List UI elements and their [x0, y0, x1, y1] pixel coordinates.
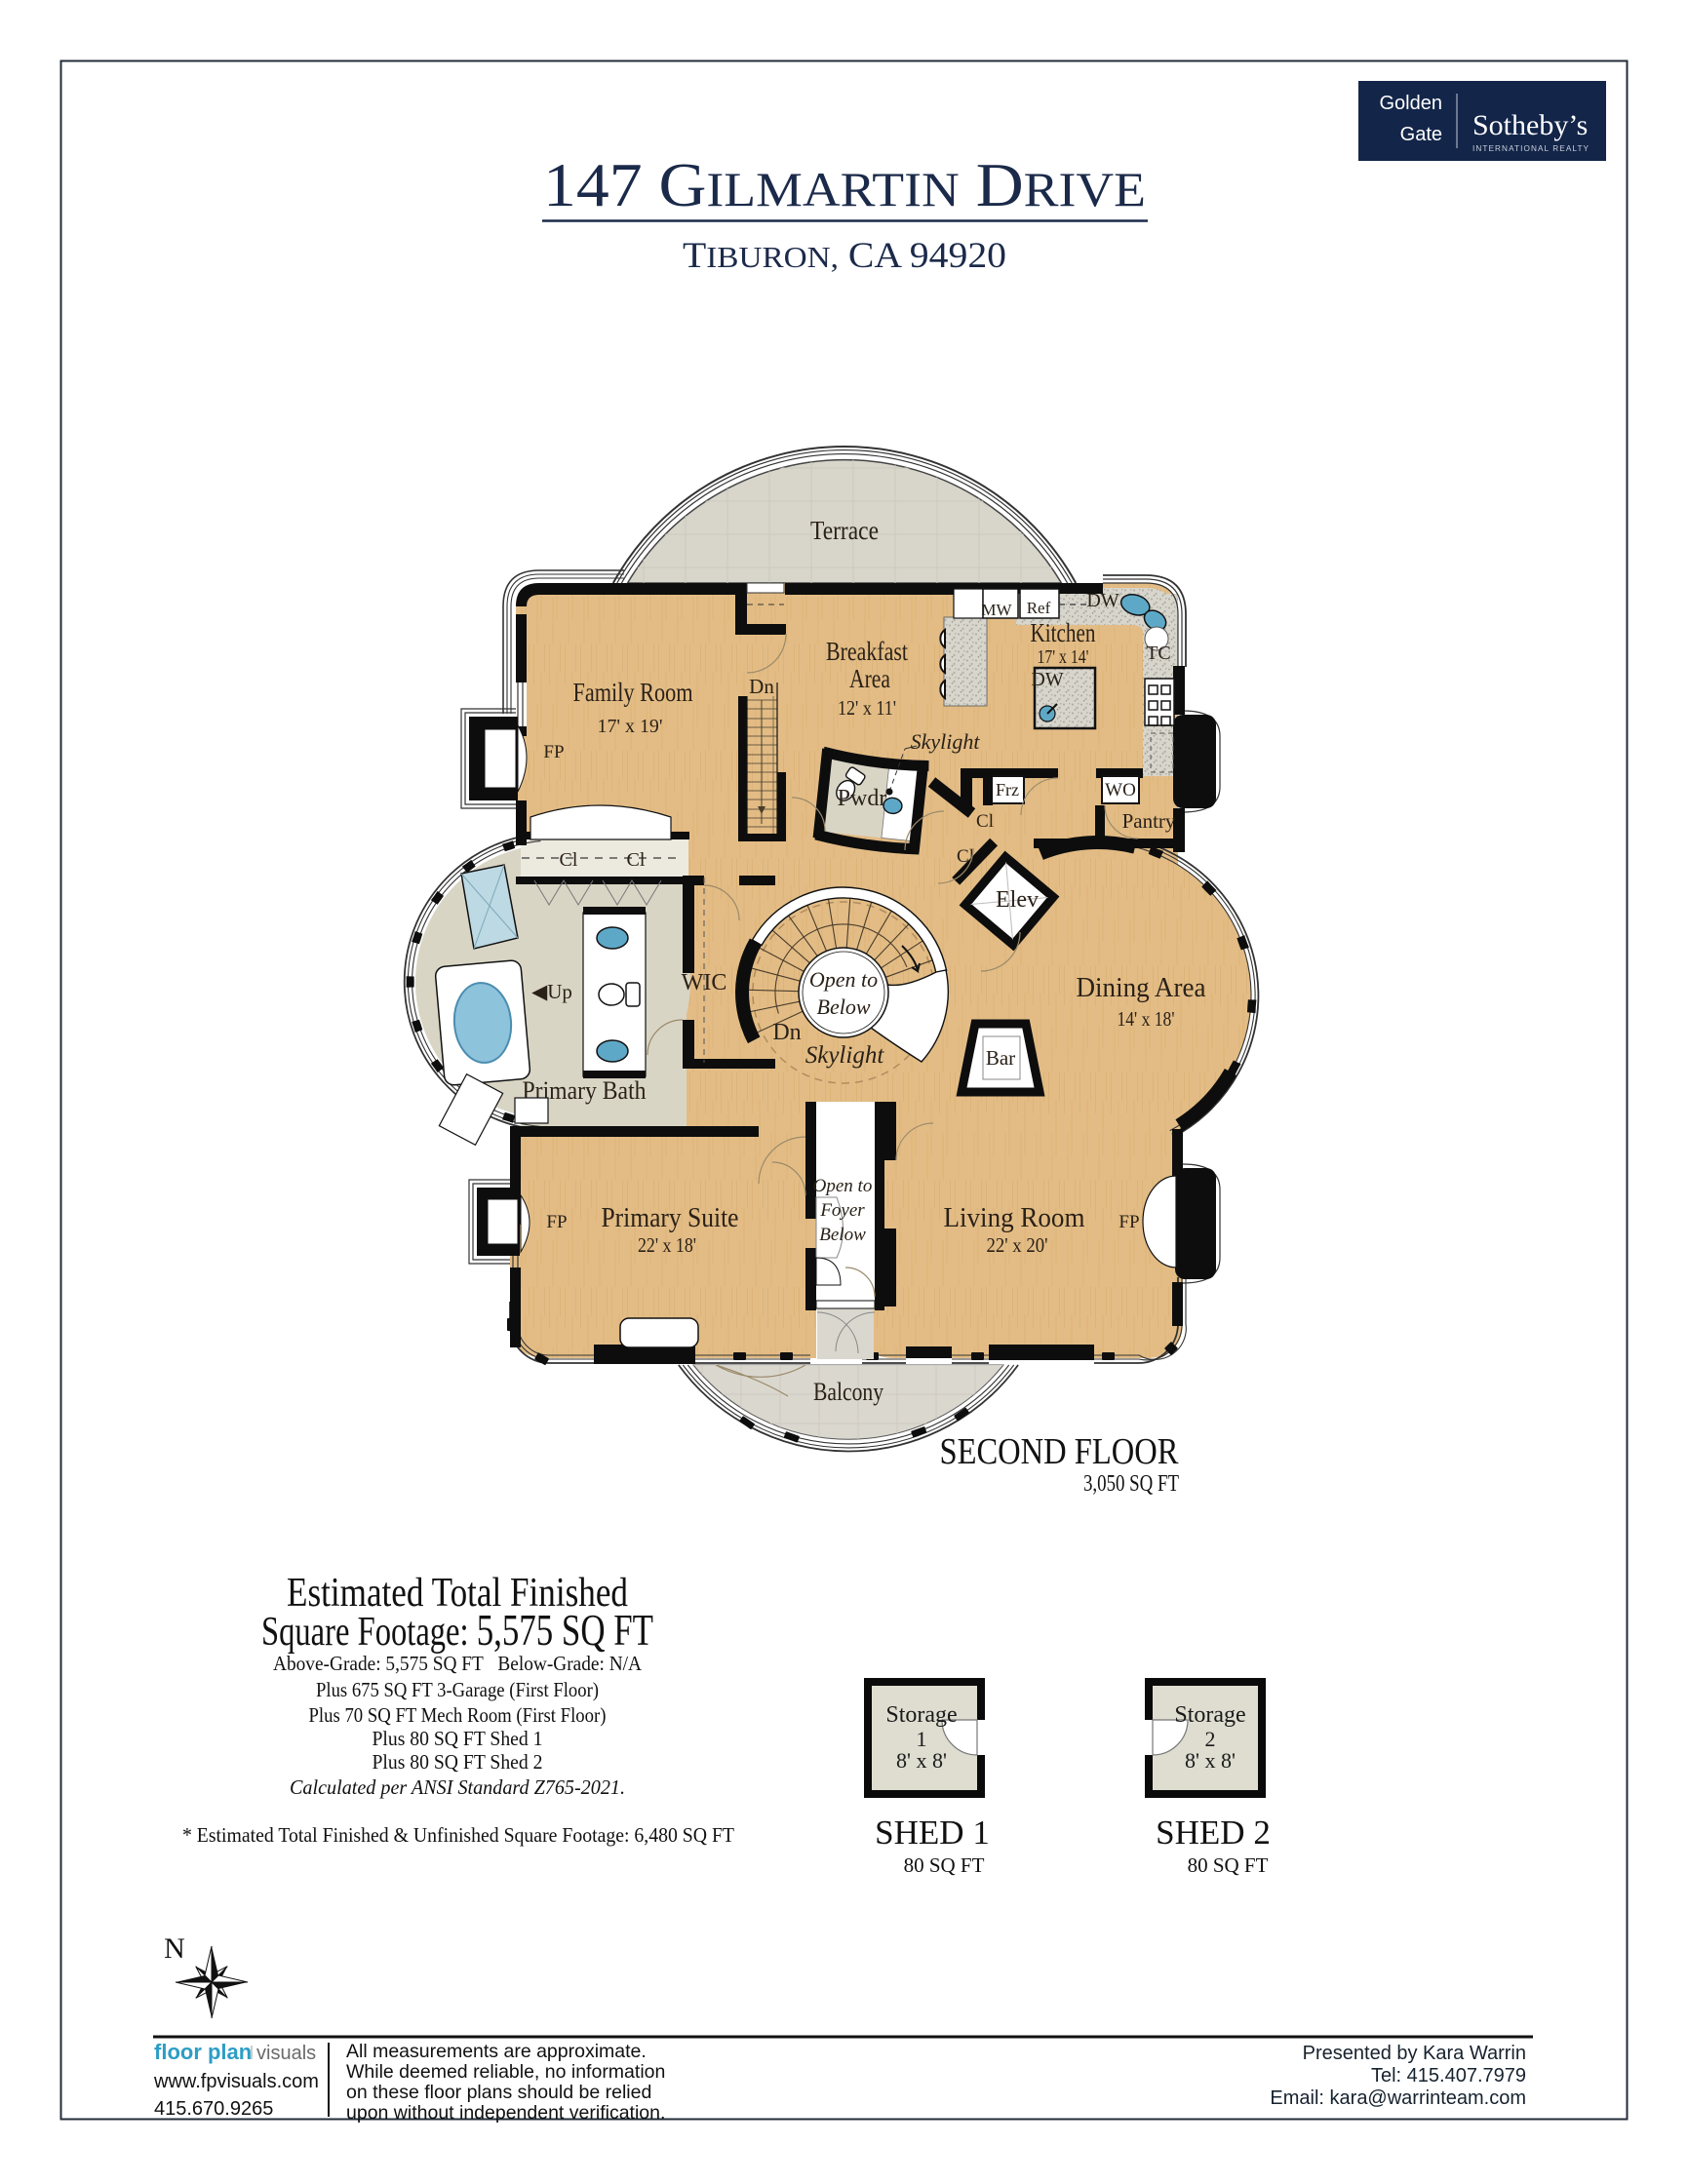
svg-text:Skylight: Skylight: [805, 1042, 885, 1069]
svg-text:14' x 18': 14' x 18': [1118, 1007, 1175, 1031]
svg-text:DW: DW: [1031, 669, 1063, 690]
svg-text:upon without independent verif: upon without independent verification.: [346, 2102, 665, 2124]
svg-text:415.670.9265: 415.670.9265: [154, 2098, 273, 2120]
svg-text:Plus 80 SQ FT Shed 2: Plus 80 SQ FT Shed 2: [373, 1750, 543, 1774]
svg-text:Pantry: Pantry: [1122, 809, 1176, 833]
svg-text:Storage: Storage: [885, 1702, 957, 1728]
svg-text:17' x 19': 17' x 19': [598, 716, 663, 737]
svg-text:WO: WO: [1105, 780, 1136, 800]
svg-text:147 GILMARTIN DRIVE: 147 GILMARTIN DRIVE: [543, 151, 1146, 219]
svg-text:Storage: Storage: [1174, 1702, 1245, 1728]
svg-text:Above-Grade: 5,575 SQ FT Bel: Above-Grade: 5,575 SQ FT Below-Grade: N/…: [273, 1652, 643, 1675]
svg-text:Frz: Frz: [996, 780, 1019, 799]
svg-text:Primary Suite: Primary Suite: [602, 1203, 739, 1233]
svg-text:FP: FP: [546, 1212, 567, 1232]
svg-text:Below: Below: [819, 1225, 866, 1245]
svg-text:Open to: Open to: [813, 1176, 873, 1196]
svg-text:Below: Below: [817, 994, 871, 1019]
svg-text:SECOND FLOOR: SECOND FLOOR: [940, 1431, 1180, 1472]
svg-text:22' x 20': 22' x 20': [987, 1233, 1048, 1257]
svg-text:Family Room: Family Room: [573, 678, 693, 707]
svg-text:Area: Area: [849, 664, 890, 693]
svg-text:8' x 8': 8' x 8': [1185, 1748, 1236, 1773]
svg-text:Plus 80 SQ FT Shed 1: Plus 80 SQ FT Shed 1: [373, 1727, 543, 1750]
svg-text:N: N: [164, 1932, 185, 1965]
svg-text:17' x 14': 17' x 14': [1038, 646, 1089, 668]
svg-text:Kitchen: Kitchen: [1031, 618, 1096, 647]
svg-text:Cl: Cl: [976, 811, 994, 832]
svg-text:www.fpvisuals.com: www.fpvisuals.com: [153, 2071, 319, 2092]
svg-text:Balcony: Balcony: [813, 1378, 883, 1406]
svg-text:While deemed reliable, no info: While deemed reliable, no information: [346, 2061, 665, 2083]
svg-text:All measurements are approxima: All measurements are approximate.: [346, 2041, 647, 2062]
svg-text:Presented by Kara Warrin: Presented by Kara Warrin: [1303, 2043, 1526, 2064]
svg-text:Plus 675 SQ FT 3-Garage (First: Plus 675 SQ FT 3-Garage (First Floor): [316, 1678, 599, 1701]
svg-text:◀Up: ◀Up: [531, 980, 572, 1003]
svg-text:Square Footage: 5,575 SQ FT: Square Footage: 5,575 SQ FT: [261, 1606, 653, 1655]
svg-text:3,050 SQ FT: 3,050 SQ FT: [1083, 1471, 1179, 1497]
svg-text:Golden: Golden: [1380, 93, 1443, 114]
svg-text:Cl: Cl: [560, 849, 578, 871]
svg-text:80 SQ FT: 80 SQ FT: [904, 1853, 985, 1877]
svg-text:Plus 70 SQ FT Mech Room (First: Plus 70 SQ FT Mech Room (First Floor): [309, 1703, 607, 1727]
svg-text:Ref: Ref: [1027, 599, 1051, 617]
svg-text:floor plan: floor plan: [154, 2040, 252, 2064]
svg-text:12' x 11': 12' x 11': [838, 696, 896, 720]
svg-text:Pwdr: Pwdr: [838, 786, 887, 811]
svg-text:Breakfast: Breakfast: [826, 637, 908, 666]
svg-text:Gate: Gate: [1400, 124, 1442, 145]
svg-text:Terrace: Terrace: [810, 516, 879, 545]
svg-text:Dn: Dn: [772, 1020, 801, 1045]
svg-text:Email: kara@warrinteam.com: Email: kara@warrinteam.com: [1270, 2087, 1526, 2109]
svg-text:Tel: 415.407.7979: Tel: 415.407.7979: [1371, 2065, 1526, 2086]
svg-text:FP: FP: [543, 742, 564, 762]
svg-text:8' x 8': 8' x 8': [896, 1748, 947, 1773]
svg-text:Living Room: Living Room: [944, 1203, 1085, 1233]
svg-text:WIC: WIC: [682, 970, 727, 995]
svg-text:TC: TC: [1146, 643, 1171, 664]
svg-text:Skylight: Skylight: [911, 729, 981, 754]
svg-text:Cl: Cl: [627, 849, 646, 871]
svg-text:* Estimated Total Finished & U: * Estimated Total Finished & Unfinished …: [182, 1823, 734, 1847]
svg-text:FP: FP: [1119, 1212, 1139, 1232]
svg-text:Bar: Bar: [986, 1046, 1015, 1070]
svg-text:Open to: Open to: [809, 967, 878, 992]
svg-text:DW: DW: [1086, 590, 1119, 611]
svg-text:22' x 18': 22' x 18': [638, 1233, 696, 1257]
svg-text:Calculated per ANSI Standard Z: Calculated per ANSI Standard Z765-2021.: [290, 1775, 625, 1799]
svg-text:Dn: Dn: [749, 675, 774, 698]
svg-text:SHED 2: SHED 2: [1156, 1813, 1271, 1852]
svg-text:on these floor plans should be: on these floor plans should be relied: [346, 2082, 651, 2103]
svg-text:visuals: visuals: [256, 2043, 316, 2064]
svg-text:INTERNATIONAL REALTY: INTERNATIONAL REALTY: [1472, 144, 1590, 153]
svg-text:Sotheby’s: Sotheby’s: [1472, 109, 1588, 141]
svg-text:SHED 1: SHED 1: [875, 1813, 990, 1852]
svg-text:Elev: Elev: [996, 887, 1039, 913]
svg-text:MW: MW: [981, 601, 1012, 619]
svg-text:Foyer: Foyer: [819, 1200, 865, 1221]
svg-text:Dining Area: Dining Area: [1077, 973, 1207, 1003]
svg-text:80 SQ FT: 80 SQ FT: [1188, 1853, 1269, 1877]
svg-text:Cl: Cl: [957, 846, 974, 867]
svg-text:TIBURON, CA 94920: TIBURON, CA 94920: [683, 236, 1006, 276]
